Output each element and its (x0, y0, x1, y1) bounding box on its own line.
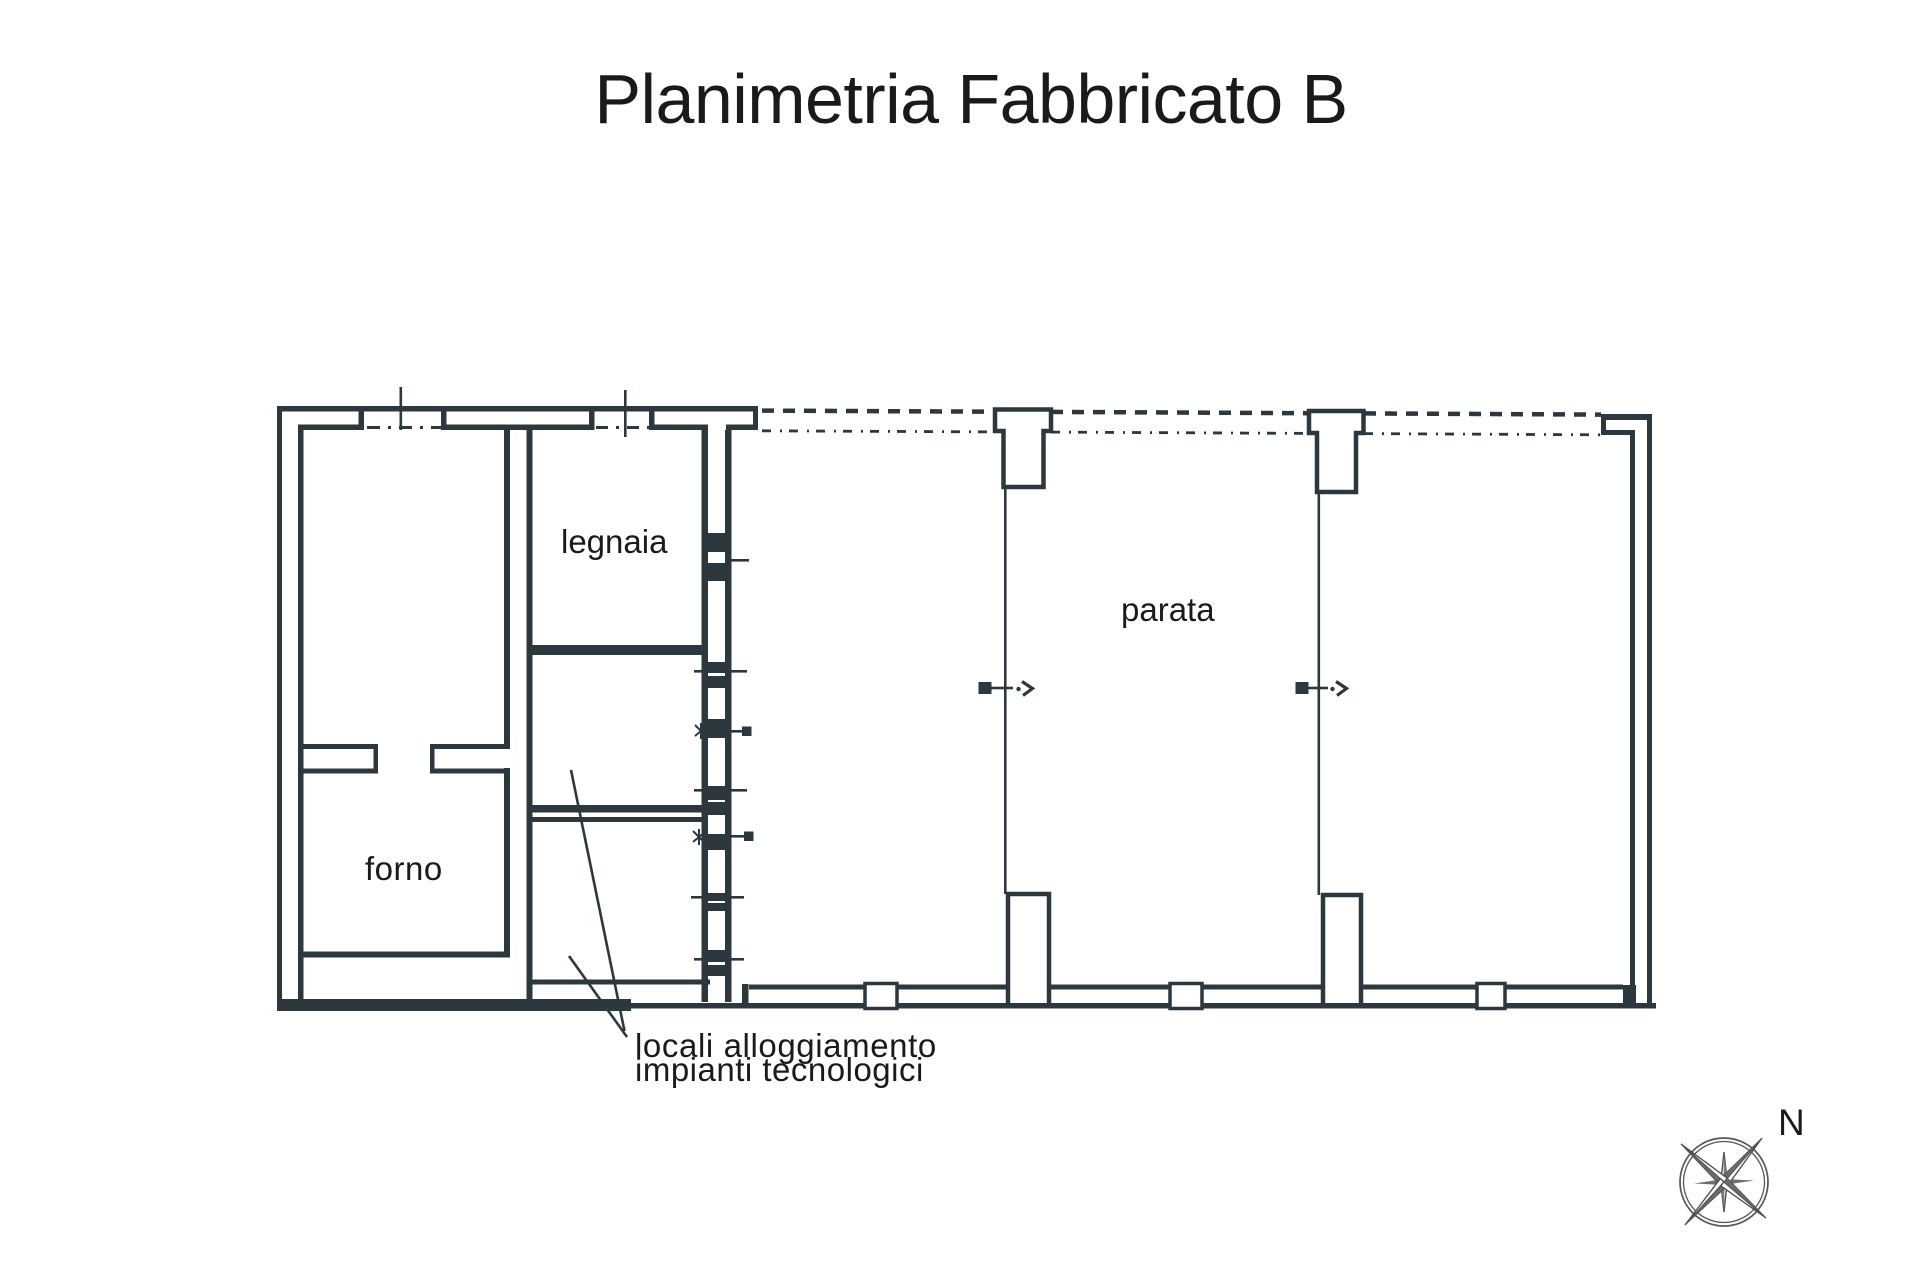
svg-text:N: N (1778, 1102, 1805, 1143)
svg-text:Planimetria Fabbricato B: Planimetria Fabbricato B (594, 60, 1347, 138)
svg-text:legnaia: legnaia (561, 523, 668, 560)
svg-text:forno: forno (365, 850, 443, 887)
svg-text:impianti tecnologici: impianti tecnologici (635, 1051, 924, 1088)
svg-text:parata: parata (1121, 591, 1215, 628)
